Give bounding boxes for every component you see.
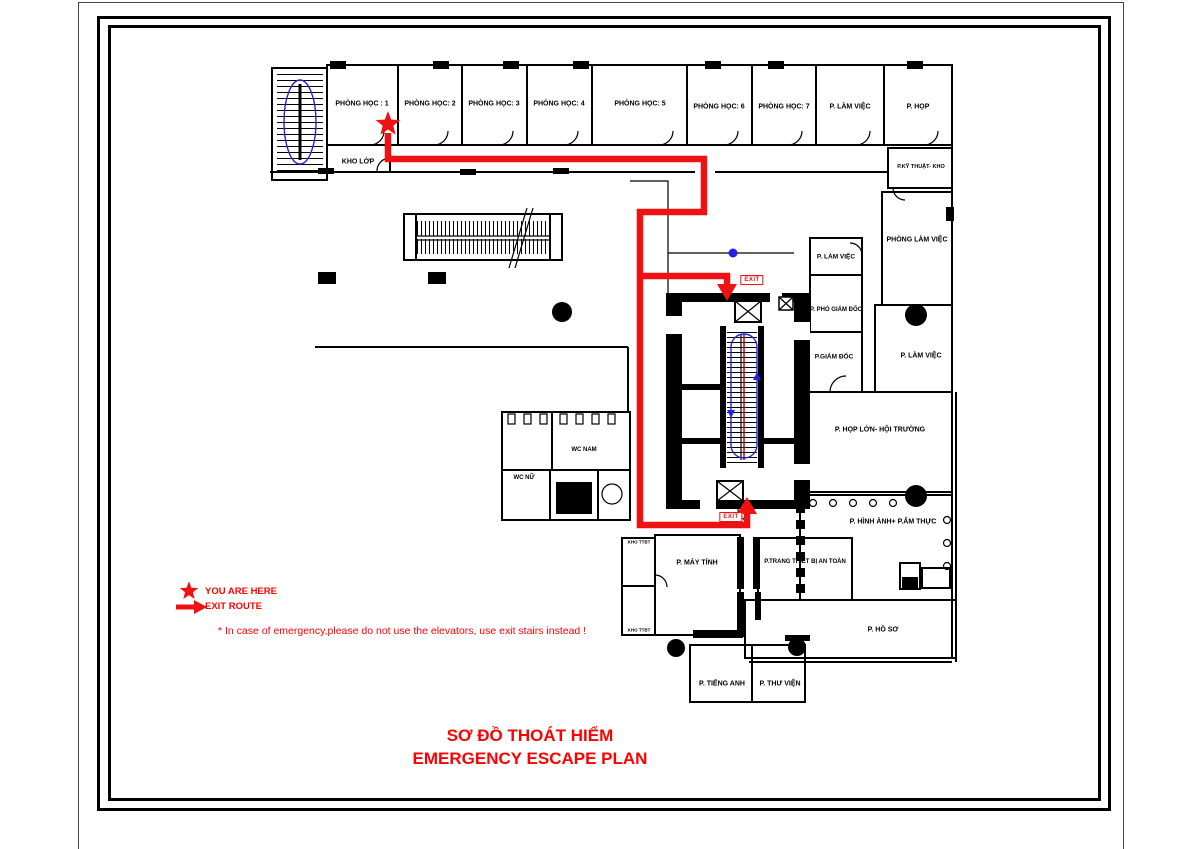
room-label-phong-hoc-5: PHÒNG HỌC: 5 [614,101,665,108]
legend-star-icon [180,581,199,599]
exit-lower-sign: EXIT [719,512,742,522]
room-label-hinh-anh-am-thuc: P. HÌNH ẢNH+ P.ẨM THỰC [850,519,937,526]
room-label-phong-hoc-3: PHÒNG HỌC: 3 [468,101,519,108]
room-label-hop: P. HỌP [907,104,930,111]
room-label-lam-viec-top: P. LÀM VIỆC [829,104,870,111]
room-label-phong-hoc-6: PHÒNG HỌC: 6 [693,104,744,111]
page-title-english: EMERGENCY ESCAPE PLAN [330,747,730,770]
escape-plan-page: PHÒNG HỌC : 1PHÒNG HỌC: 2PHÒNG HỌC: 3PHÒ… [0,0,1200,849]
room-label-phong-hoc-2: PHÒNG HỌC: 2 [404,101,455,108]
you-are-here-star-icon [376,111,401,135]
legend-exit-route-label: EXIT ROUTE [205,601,262,612]
stair-route-markings [284,80,761,458]
room-label-trang-thiet-bi-an-toan: P.TRANG THIẾT BỊ AN TOÀN [764,559,846,565]
room-label-tieng-anh: P. TIẾNG ANH [699,681,745,688]
room-label-lam-viec-right: P. LÀM VIỆC [900,353,941,360]
room-label-thu-vien: P. THƯ VIỆN [759,681,800,688]
elevator-icon [717,297,793,501]
room-label-phong-hoc-7: PHÒNG HỌC: 7 [758,104,809,111]
room-label-hop-lon-hoi-truong: P. HỌP LỚN- HỘI TRƯỜNG [835,427,925,434]
room-label-wc-nam: WC NAM [571,447,596,453]
room-label-lam-viec-mid: P. LÀM VIỆC [817,254,855,261]
central-core [666,293,810,509]
room-label-wc-nu: WC NỮ [514,475,535,481]
room-label-kho-ttbt-tren: KHO TTBT [628,540,651,545]
legend-icons [176,581,207,614]
page-title-vietnamese: SƠ ĐỒ THOÁT HIỂM [330,724,730,747]
room-label-kho-lop: KHO LỚP [342,159,374,166]
room-label-ho-so: P. HỒ SƠ [868,627,899,634]
assembly-dot [729,249,738,258]
page-title: SƠ ĐỒ THOÁT HIỂM EMERGENCY ESCAPE PLAN [330,724,730,770]
room-label-phong-hoc-1: PHÒNG HỌC : 1 [335,101,388,108]
room-label-giam-doc: P.GIÁM ĐỐC [815,354,854,361]
room-label-phong-lam-viec: PHÒNG LÀM VIỆC [886,237,947,244]
exit-upper-sign: EXIT [740,275,763,285]
legend-you-are-here-label: YOU ARE HERE [205,586,277,597]
room-label-ky-thuat-kho: P.KỸ THUẬT- KHO [897,164,945,170]
room-label-kho-ttbt-duoi: KHO TTBT [628,628,651,633]
room-label-may-tinh: P. MÁY TÍNH [676,560,717,567]
legend-note: * In case of emergency,please do not use… [218,625,586,637]
floor-plan-drawing [0,0,1200,849]
room-label-phong-hoc-4: PHÒNG HỌC: 4 [533,101,584,108]
room-label-pho-giam-doc: P. PHÓ GIÁM ĐỐC [810,307,862,313]
